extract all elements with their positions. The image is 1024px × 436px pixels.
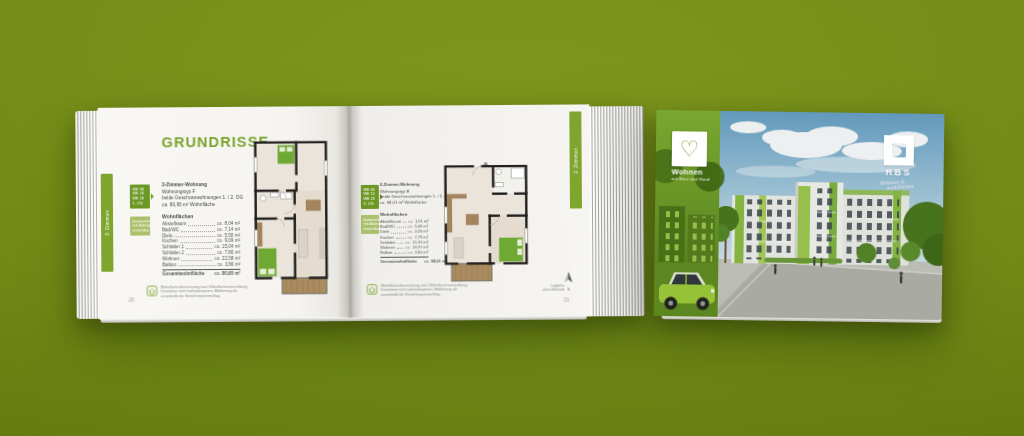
footnote: Wohnflächenberechnung nach Wohnflächenve… [147,285,249,299]
area-row: Balkonca.3,81 m² [380,250,428,256]
unit-info-line: erreichbar [364,227,377,232]
chapter-tab-label: 3 Zimmer [104,210,110,236]
area-rows: Abstellraumca.8,04 m² Bad/WCca.7,14 m² D… [162,221,240,268]
brochure-left-page: 3 Zimmer GRUNDRISSE WE 08WE 18WE 281. OG… [97,106,350,320]
brand-logo-box: ♡ [672,131,707,166]
apartment-intro: 3-Zimmer-WohnungWohnungstyp Fbeide Gesch… [162,182,248,208]
footnote-line: unverbindlicher Einrichtungsvorschlag. [161,294,248,299]
area-row: Balkonca.3,80 m² [162,261,240,267]
page-number-right: 21 [564,297,570,303]
unit-number-box: WE 05WE 15WE 252. OG [361,185,379,209]
chapter-tab-3-zimmer: 3 Zimmer [101,174,114,272]
compass-caption-line: ohne Maßstab [531,288,565,292]
intro-line: beide Geschosswohnungen 1. / 2. OG [162,195,248,202]
chapter-tab-2-zimmer: 2 Zimmer [569,111,582,208]
mockup-scene: 3 Zimmer GRUNDRISSE WE 08WE 18WE 281. OG… [0,0,1024,436]
area-table: Abstellraumca.1,91 m² Bad/WCca.5,09 m² D… [380,219,428,265]
page-edge-stack-right [589,106,644,316]
page-number-left: 20 [129,297,135,303]
intro-line: ca. 80,95 m² Wohnfläche [162,201,248,208]
brand-subtitle: mit Herz und Hand [671,176,709,182]
cover-front: ♡ Wohnen mit Herz und Hand RBS Wohnen & … [654,110,945,320]
areas-heading: Wohnflächen [380,212,408,217]
footnote: Wohnflächenberechnung nach Wohnflächenve… [367,283,469,297]
unit-info-box: barrierefreimit Aufzugerreichbar [130,216,150,236]
rbs-logo-text: RBS [878,166,920,178]
floor-plan-3-zimmer [251,135,330,302]
area-total-row: Gesamtwohnflächeca.80,95 m² [162,269,240,277]
heart-icon: ♡ [679,138,699,160]
brochure-right-page: 2 Zimmer WE 05WE 15WE 252. OG barrierefr… [349,104,590,318]
north-arrow-icon [563,272,573,284]
page-edge-stack-left [75,111,98,319]
area-total-row: Gesamtwohnflächeca.58,01 m² [380,257,428,265]
open-brochure-spread: 3 Zimmer GRUNDRISSE WE 08WE 18WE 281. OG… [75,104,644,320]
rbs-square-logo-icon [884,135,914,165]
footnote-line: unverbindlicher Einrichtungsvorschlag. [381,292,468,297]
floor-plan-2-zimmer [442,157,531,290]
compass-caption: Lageplanohne Maßstab [531,284,565,293]
unit-info-line: erreichbar [133,229,148,234]
chapter-tab-label: 2 Zimmer [573,147,579,173]
area-rows: Abstellraumca.1,91 m² Bad/WCca.5,09 m² D… [380,219,428,256]
unit-number-line: 1. OG [132,201,147,206]
brand-title: Wohnen [672,167,703,176]
house-icon [147,285,158,296]
unit-number-box: WE 08WE 18WE 281. OG [130,184,150,208]
unit-info-box: barrierefreimit Aufzugerreichbar [361,215,379,235]
areas-heading: Wohnflächen [162,213,193,219]
intro-line: 3-Zimmer-Wohnung [162,182,248,189]
house-icon [367,284,378,295]
area-table: Abstellraumca.8,04 m² Bad/WCca.7,14 m² D… [162,221,240,278]
unit-number-line: 2. OG [363,202,376,207]
brochure-cover: ♡ Wohnen mit Herz und Hand RBS Wohnen & … [654,110,945,320]
